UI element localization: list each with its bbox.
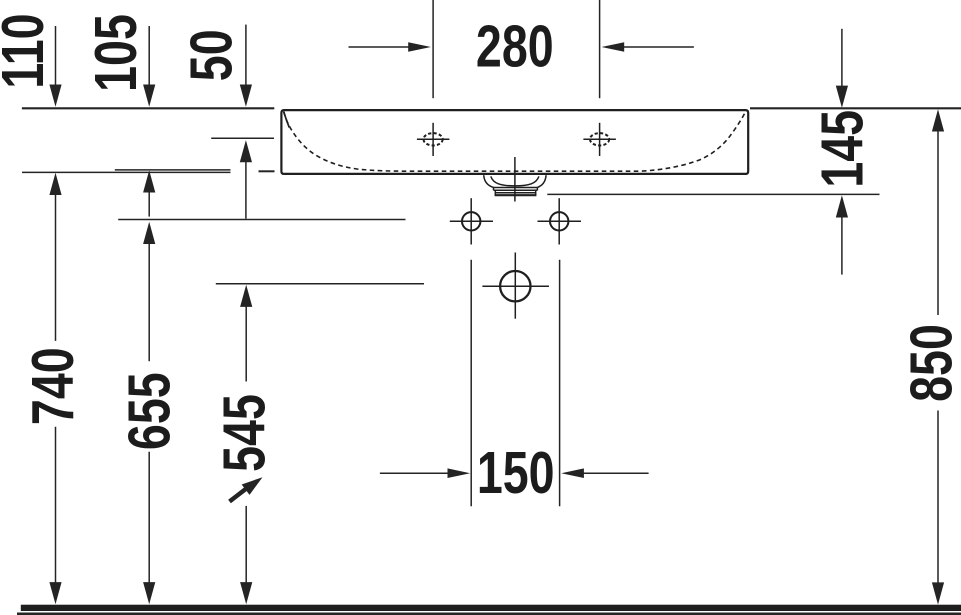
svg-text:50: 50	[180, 29, 245, 81]
svg-text:105: 105	[84, 14, 149, 92]
svg-text:545: 545	[213, 394, 278, 472]
svg-text:655: 655	[117, 372, 182, 450]
svg-text:110: 110	[0, 13, 57, 88]
svg-text:145: 145	[810, 110, 875, 188]
svg-text:150: 150	[477, 441, 555, 506]
svg-text:280: 280	[476, 14, 554, 79]
svg-text:850: 850	[900, 324, 961, 402]
svg-text:740: 740	[21, 347, 86, 425]
